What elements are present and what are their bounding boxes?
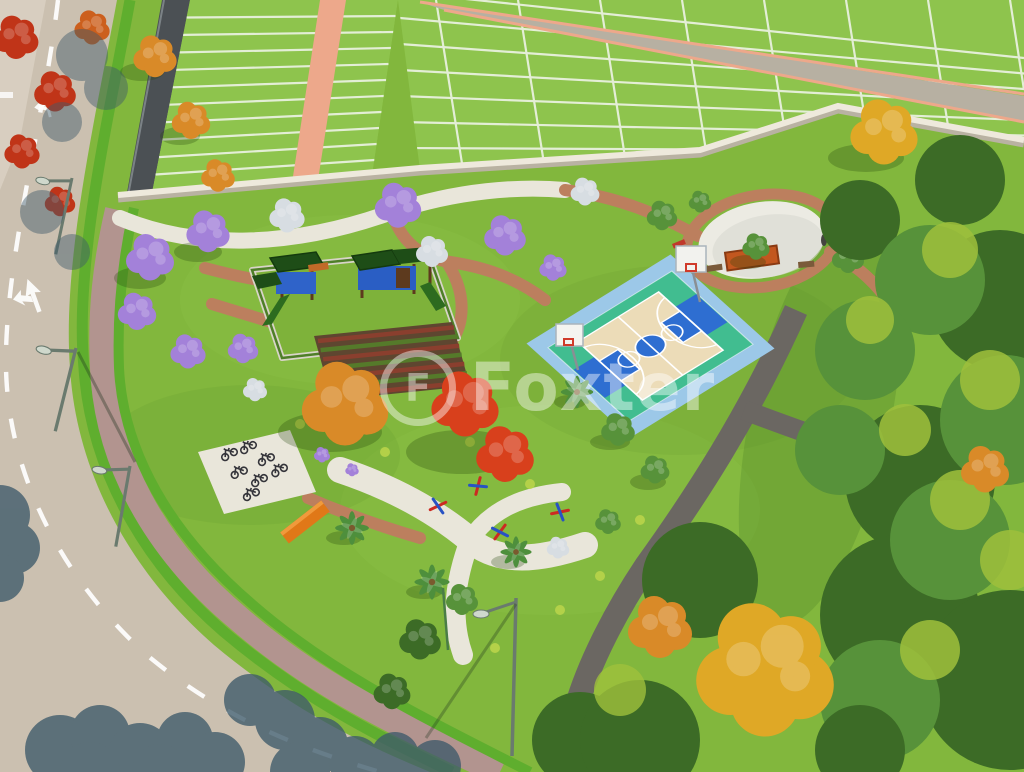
road-marking [0, 92, 13, 98]
scene-svg [0, 0, 1024, 772]
aerial-render: F Foxter [0, 0, 1024, 772]
lots-block-left [126, 0, 398, 198]
